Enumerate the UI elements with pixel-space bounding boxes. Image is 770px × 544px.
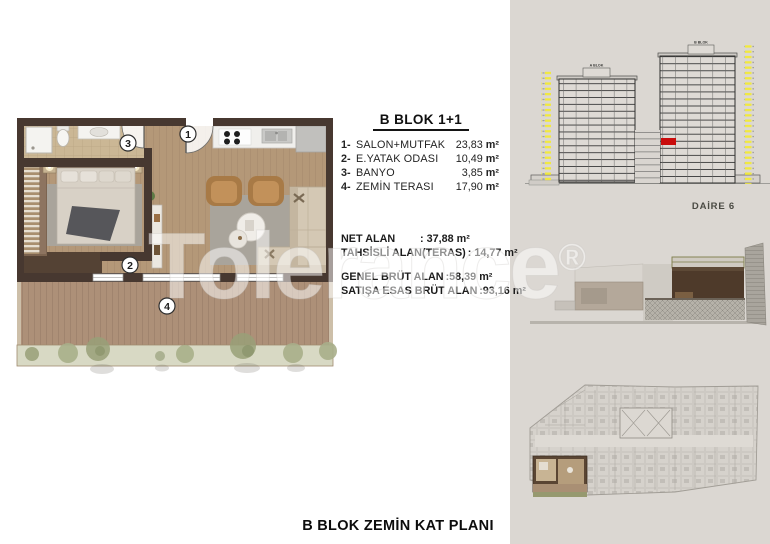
room-row: 3- BANYO 3,85 m² bbox=[341, 166, 499, 180]
svg-text:2: 2 bbox=[127, 260, 133, 272]
elevation-caption: DAİRE 6 bbox=[650, 201, 750, 212]
tower-a-label: A BLOK bbox=[590, 64, 604, 68]
tower-b: B BLOK bbox=[658, 41, 737, 184]
footer-title: B BLOK ZEMİN KAT PLANI bbox=[250, 518, 546, 534]
unit-title-wrap: B BLOK 1+1 bbox=[340, 111, 502, 131]
room-marker-3: 3 bbox=[120, 135, 136, 151]
toilet bbox=[57, 126, 69, 147]
room-marker-4: 4 bbox=[159, 298, 175, 314]
armchair bbox=[206, 176, 242, 206]
site-section bbox=[525, 238, 770, 333]
tv-unit bbox=[152, 205, 162, 268]
building-elevation: A BLOK B BLOK bbox=[525, 28, 770, 218]
key-plan-unit-terrace bbox=[533, 484, 587, 492]
armchair bbox=[248, 176, 284, 206]
room-marker-2: 2 bbox=[122, 257, 138, 273]
connector-block bbox=[635, 130, 660, 183]
bed bbox=[57, 162, 135, 244]
window bbox=[93, 274, 283, 281]
kitchen-sink bbox=[262, 129, 292, 143]
shower bbox=[26, 127, 52, 153]
highlight-unit-red bbox=[661, 138, 676, 145]
tower-b-roofbox bbox=[688, 45, 714, 54]
tower-a: A BLOK bbox=[557, 64, 637, 183]
brochure-page: 1 3 2 4 B BLOK 1+1 1- SALON+MUTFAK 23,83… bbox=[0, 0, 770, 544]
key-plan-highlight-unit bbox=[533, 456, 587, 497]
unit-title: B BLOK 1+1 bbox=[373, 112, 469, 131]
room-row: 4- ZEMİN TERASI 17,90 m² bbox=[341, 180, 499, 194]
room-list: 1- SALON+MUTFAK 23,83 m² 2- E.YATAK ODAS… bbox=[341, 138, 499, 194]
room-marker-1: 1 bbox=[180, 126, 196, 142]
metrics-brut: GENEL BRÜT ALAN :58,39 m² SATIŞA ESAS BR… bbox=[341, 271, 526, 298]
metric-row: TAHSİSLİ ALAN(TERAS) : 14,77 m² bbox=[341, 247, 526, 261]
key-plan-unit-garden bbox=[533, 492, 587, 497]
floor-markers-right bbox=[744, 44, 754, 184]
tower-b-label: B BLOK bbox=[694, 41, 708, 45]
section-steps bbox=[555, 301, 575, 310]
tower-a-roofbox bbox=[583, 68, 610, 77]
metric-row: GENEL BRÜT ALAN :58,39 m² bbox=[341, 271, 526, 285]
svg-text:3: 3 bbox=[125, 138, 131, 150]
metric-row: NET ALAN : 37,88 m² bbox=[341, 233, 526, 247]
metrics-net: NET ALAN : 37,88 m² TAHSİSLİ ALAN(TERAS)… bbox=[341, 233, 526, 260]
terrace bbox=[17, 276, 333, 346]
stove bbox=[219, 129, 251, 145]
key-plan bbox=[525, 380, 770, 544]
metric-row: SATIŞA ESAS BRÜT ALAN :93,16 m² bbox=[341, 285, 526, 299]
section-ground bbox=[530, 321, 765, 324]
floor-markers-left bbox=[541, 70, 551, 183]
wardrobe bbox=[21, 160, 47, 256]
room-row: 1- SALON+MUTFAK 23,83 m² bbox=[341, 138, 499, 152]
key-plan-core bbox=[620, 408, 672, 438]
kitchen-counter bbox=[213, 126, 326, 152]
room-row: 2- E.YATAK ODASI 10,49 m² bbox=[341, 152, 499, 166]
kitchen-cabinet bbox=[296, 126, 326, 152]
svg-text:4: 4 bbox=[164, 301, 170, 313]
sink bbox=[78, 125, 120, 139]
floor-plan: 1 3 2 4 bbox=[10, 110, 340, 382]
section-roof-garden bbox=[672, 257, 744, 268]
svg-text:1: 1 bbox=[185, 129, 191, 141]
